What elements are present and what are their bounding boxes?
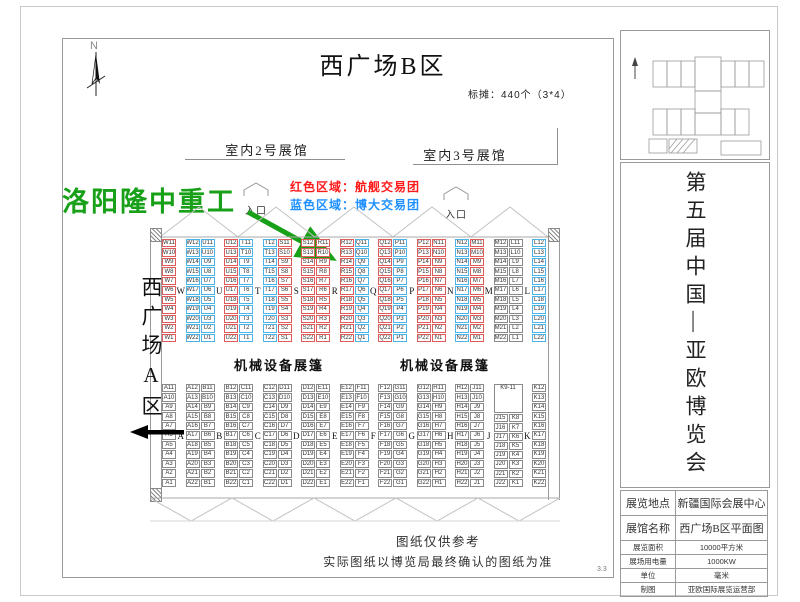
booth-cell: M6 [470, 286, 484, 294]
booth-cell: Q15 [378, 267, 392, 275]
booth-cell: R2 [316, 324, 330, 332]
booth-cell: A4 [162, 450, 176, 458]
venue-overview-minimap [621, 31, 769, 157]
booth-cell: B20 [224, 460, 238, 468]
overview-map-box [620, 30, 770, 160]
booth-cell: R19 [340, 305, 354, 313]
info-value: 新疆国际会展中心 [676, 491, 768, 516]
booth-cell: E2 [316, 469, 330, 477]
west-area-label: 西广场A区 [136, 276, 166, 436]
booth-cell: W21 [186, 324, 200, 332]
row-letter: M [485, 239, 493, 342]
booth-cell: Q22 [378, 334, 392, 342]
booth-cell: R3 [316, 315, 330, 323]
booth-cell: M16 [494, 277, 508, 285]
booth-cell: G15 [417, 412, 431, 420]
booth-cell: D16 [301, 422, 315, 430]
booth-column-group: A12A13A14A15A16A17A18A19A20A21A22B11B10B… [186, 384, 215, 487]
booth-cell: A19 [186, 450, 200, 458]
booth-cell: H19 [455, 450, 469, 458]
booth-cell: L11 [509, 239, 523, 247]
booth-cell: P20 [417, 315, 431, 323]
booth-cell: C9 [239, 403, 253, 411]
footer-line2: 实际图纸以博览局最终确认的图纸为准 [318, 553, 558, 570]
booth-cell: R11 [316, 239, 330, 247]
booth-cell: T13 [263, 248, 277, 256]
entrance-roof-icon [442, 186, 470, 201]
booth-column-group: F12F13F14F15F16F17F18F19F20F21F22G11G10G… [378, 384, 407, 487]
booth-cell: K16 [532, 422, 546, 430]
booth-cell: S13 [301, 248, 315, 256]
booth-cell: E9 [316, 403, 330, 411]
row-letter: P [408, 239, 416, 342]
booth-cell: L12 [532, 239, 546, 247]
info-label: 展览地点 [621, 491, 676, 516]
booth-cell: P3 [393, 315, 407, 323]
booth-cell: C4 [239, 450, 253, 458]
booth-cell: L7 [509, 277, 523, 285]
booth-cell: T17 [263, 286, 277, 294]
booth-cell: F1 [355, 479, 369, 487]
booth-cell: W16 [186, 277, 200, 285]
booth-cell: G13 [417, 393, 431, 401]
booth-cell: M19 [494, 305, 508, 313]
booth-cell: L6 [509, 286, 523, 294]
booth-cell: U14 [224, 258, 238, 266]
booth-cell: A14 [186, 403, 200, 411]
booth-cell: B8 [201, 412, 215, 420]
booth-cell: P21 [417, 324, 431, 332]
booth-cell: N18 [455, 296, 469, 304]
row-letter: N [446, 239, 454, 342]
booth-cell: D10 [278, 393, 292, 401]
booth-cell: E4 [316, 450, 330, 458]
booth-cell: J20 [494, 460, 508, 468]
booth-cell: N14 [455, 258, 469, 266]
booth-cell: Q21 [378, 324, 392, 332]
booth-cell: A1 [162, 479, 176, 487]
row-letter: L [523, 239, 531, 342]
booth-cell: K4 [509, 451, 523, 459]
booth-cell: K22 [532, 479, 546, 487]
booth-cell: U11 [201, 239, 215, 247]
booth-cell: K2 [509, 470, 523, 478]
booth-grid-lower: A11A10A9A8A7A6A5A4A3A2A1AA12A13A14A15A16… [162, 384, 546, 487]
booth-cell: M2 [470, 324, 484, 332]
booth-cell: W22 [186, 334, 200, 342]
booth-cell: N13 [455, 248, 469, 256]
booth-cell: G2 [393, 469, 407, 477]
booth-cell: Q5 [355, 296, 369, 304]
booth-cell: R1 [316, 334, 330, 342]
booth-cell: F5 [355, 441, 369, 449]
booth-cell: B3 [201, 460, 215, 468]
booth-cell: S7 [278, 277, 292, 285]
booth-cell: F20 [378, 460, 392, 468]
booth-cell: U15 [224, 267, 238, 275]
booth-column-group: B12B13B14B15B16B17B18B19B20B21B22C11C10C… [224, 384, 253, 487]
booth-column-group: T12T13T14T15T16T17T18T19T20T21T22S11S10S… [263, 239, 292, 342]
footer-line1: 图纸仅供参考 [318, 531, 558, 550]
info-label: 展览面积 [621, 541, 676, 555]
hall-3-wall-side [557, 128, 558, 165]
booth-cell: T7 [239, 277, 253, 285]
table-row: 展场用电量 1000KW [621, 555, 768, 569]
row-letter: E [331, 384, 339, 487]
booth-cell: L8 [509, 267, 523, 275]
booth-cell: Q20 [378, 315, 392, 323]
booth-cell: T22 [263, 334, 277, 342]
booth-cell: R10 [316, 248, 330, 256]
booth-cell: S16 [301, 277, 315, 285]
info-table: 展览地点 新疆国际会展中心 展馆名称 西广场B区平面图 展览面积 10000平方… [620, 490, 768, 597]
booth-cell: D14 [301, 403, 315, 411]
booth-cell: W17 [186, 286, 200, 294]
booth-cell: P13 [417, 248, 431, 256]
booth-cell: W10 [162, 248, 176, 256]
booth-cell: F7 [355, 422, 369, 430]
booth-cell: D5 [278, 441, 292, 449]
info-value: 毫米 [676, 569, 768, 583]
booth-block: K9-11 [494, 384, 523, 413]
booth-cell: Q12 [378, 239, 392, 247]
booth-cell: E13 [340, 393, 354, 401]
booth-cell: B15 [224, 412, 238, 420]
booth-cell: B7 [201, 422, 215, 430]
booth-cell: H8 [432, 412, 446, 420]
booth-cell: J16 [494, 423, 508, 431]
booth-cell: E21 [340, 469, 354, 477]
booth-cell: N8 [432, 267, 446, 275]
booth-cell: R6 [316, 286, 330, 294]
booth-cell: A20 [186, 460, 200, 468]
booth-cell: G17 [417, 431, 431, 439]
booth-column-group: C12C13C14C15C16C17C18C19C20C21C22D11D10D… [263, 384, 292, 487]
booth-cell: B4 [201, 450, 215, 458]
booth-cell: H1 [432, 479, 446, 487]
west-direction-arrow [128, 424, 186, 440]
row-letter: C [254, 384, 262, 487]
booth-cell: H15 [455, 412, 469, 420]
row-letter: H [446, 384, 454, 487]
booth-cell: K12 [532, 384, 546, 392]
tent-label-right: 机械设备展篷 [390, 355, 500, 374]
booth-cell: E20 [340, 460, 354, 468]
row-letter: J [485, 384, 493, 487]
booth-cell: A17 [186, 431, 200, 439]
booth-column-group: U12U13U14U15U16U17U18U19U20U21U22T11T10T… [224, 239, 253, 342]
booth-cell: M4 [470, 305, 484, 313]
booth-cell: Q17 [378, 286, 392, 294]
booth-cell: B21 [224, 469, 238, 477]
booth-cell: M7 [470, 277, 484, 285]
row-letter: Q [369, 239, 377, 342]
booth-cell: P18 [417, 296, 431, 304]
info-value: 10000平方米 [676, 541, 768, 555]
booth-cell: R17 [340, 286, 354, 294]
booth-cell: S22 [301, 334, 315, 342]
booth-cell: P16 [417, 277, 431, 285]
booth-column-group: E12E13E14E15E16E17E18E19E20E21E22F11F10F… [340, 384, 369, 487]
booth-cell: E22 [340, 479, 354, 487]
booth-cell: B22 [224, 479, 238, 487]
booth-cell: C8 [239, 412, 253, 420]
booth-cell: F19 [378, 450, 392, 458]
row-letter: W [177, 239, 185, 342]
booth-cell: T15 [263, 267, 277, 275]
booth-count-note: 标摊：440个（3*4） [468, 86, 608, 101]
booth-cell: Q14 [378, 258, 392, 266]
booth-cell: W14 [186, 258, 200, 266]
booth-cell: G20 [417, 460, 431, 468]
booth-cell: B9 [201, 403, 215, 411]
booth-cell: H2 [432, 469, 446, 477]
booth-column-group: G12G13G14G15G16G17G18G19G20G21G22H11H10H… [417, 384, 446, 487]
booth-column-group: K9-11J15J16J17J18J19J20J21J22K8K7K6K5K4K… [494, 384, 523, 487]
info-value: 亚欧国际展览运营部 [676, 583, 768, 597]
booth-cell: N6 [432, 286, 446, 294]
booth-column-group: R12R13R14R15R16R17R18R19R20R21R22Q11Q10Q… [340, 239, 369, 342]
booth-cell: J19 [494, 451, 508, 459]
booth-cell: R18 [340, 296, 354, 304]
booth-cell: B11 [201, 384, 215, 392]
booth-cell: T8 [239, 267, 253, 275]
booth-cell: C20 [263, 460, 277, 468]
row-letter: K [523, 384, 531, 487]
booth-cell: M17 [494, 286, 508, 294]
booth-cell: J7 [470, 422, 484, 430]
booth-cell: H9 [432, 403, 446, 411]
booth-cell: G10 [393, 393, 407, 401]
booth-cell: L9 [509, 258, 523, 266]
booth-cell: F21 [378, 469, 392, 477]
table-row: 单位 毫米 [621, 569, 768, 583]
booth-cell: F4 [355, 450, 369, 458]
booth-cell: E17 [340, 431, 354, 439]
booth-cell: K21 [532, 469, 546, 477]
booth-cell: P15 [417, 267, 431, 275]
booth-cell: J21 [494, 470, 508, 478]
booth-cell: R16 [340, 277, 354, 285]
booth-cell: S15 [301, 267, 315, 275]
hall-2-label: 室内2号展馆 [212, 140, 322, 159]
booth-grid-upper: W11W10W9W8W7W6W5W4W3W2W1WW12W13W14W15W16… [162, 239, 546, 342]
booth-cell: L17 [532, 286, 546, 294]
booth-cell: C12 [263, 384, 277, 392]
booth-cell: U12 [224, 239, 238, 247]
booth-cell: D8 [278, 412, 292, 420]
booth-cell: U5 [201, 296, 215, 304]
info-label: 展馆名称 [621, 516, 676, 541]
tent-roofs-bottom [150, 497, 560, 525]
booth-cell: C17 [263, 431, 277, 439]
booth-cell: S8 [278, 267, 292, 275]
booth-cell: L3 [509, 315, 523, 323]
booth-cell: N12 [455, 239, 469, 247]
booth-cell: L13 [532, 248, 546, 256]
row-letter: U [215, 239, 223, 342]
booth-cell: T6 [239, 286, 253, 294]
booth-cell: J22 [494, 479, 508, 487]
booth-cell: M15 [494, 267, 508, 275]
booth-cell: M22 [494, 334, 508, 342]
booth-cell: L1 [509, 334, 523, 342]
row-letter: D [292, 384, 300, 487]
booth-cell: P11 [393, 239, 407, 247]
booth-cell: L16 [532, 277, 546, 285]
booth-cell: G18 [417, 441, 431, 449]
booth-cell: U7 [201, 277, 215, 285]
footer-note: 图纸仅供参考 实际图纸以博览局最终确认的图纸为准 [318, 531, 558, 570]
booth-cell: S5 [278, 296, 292, 304]
page-title: 西广场B区 [298, 46, 468, 81]
booth-cell: B10 [201, 393, 215, 401]
booth-cell: R13 [340, 248, 354, 256]
page-number: 3.3 [597, 566, 607, 573]
booth-cell: E14 [340, 403, 354, 411]
booth-cell: D1 [278, 479, 292, 487]
booth-cell: H16 [455, 422, 469, 430]
booth-cell: A5 [162, 441, 176, 449]
booth-column-group: N12N13N14N15N16N17N18N19N20N21N22M11M10M… [455, 239, 484, 342]
booth-cell: D9 [278, 403, 292, 411]
booth-column-group: D12D13D14D15D16D17D18D19D20D21D22E11E10E… [301, 384, 330, 487]
booth-cell: S4 [278, 305, 292, 313]
booth-cell: U9 [201, 258, 215, 266]
booth-cell: W15 [186, 267, 200, 275]
booth-cell: C21 [263, 469, 277, 477]
booth-cell: N21 [455, 324, 469, 332]
booth-cell: E7 [316, 422, 330, 430]
booth-cell: S9 [278, 258, 292, 266]
booth-cell: E3 [316, 460, 330, 468]
booth-cell: G21 [417, 469, 431, 477]
booth-cell: P9 [393, 258, 407, 266]
booth-cell: Q4 [355, 305, 369, 313]
booth-cell: E1 [316, 479, 330, 487]
booth-cell: K19 [532, 450, 546, 458]
booth-cell: L14 [532, 258, 546, 266]
booth-cell: K5 [509, 442, 523, 450]
booth-cell: W9 [162, 258, 176, 266]
booth-cell: S1 [278, 334, 292, 342]
booth-cell: S20 [301, 315, 315, 323]
booth-cell: C3 [239, 460, 253, 468]
booth-cell: F6 [355, 431, 369, 439]
booth-cell: H20 [455, 460, 469, 468]
hall-3-label: 室内3号展馆 [410, 145, 520, 164]
booth-cell: U21 [224, 324, 238, 332]
booth-cell: F3 [355, 460, 369, 468]
booth-column-group: L12L13L14L15L16L17L18L19L20L21L22 [532, 239, 546, 342]
booth-cell: T20 [263, 315, 277, 323]
booth-cell: G5 [393, 441, 407, 449]
booth-cell: K13 [532, 393, 546, 401]
booth-column-group: M12M13M14M15M16M17M18M19M20M21M22L11L10L… [494, 239, 523, 342]
booth-cell: H13 [455, 393, 469, 401]
booth-cell: Q16 [378, 277, 392, 285]
booth-cell: E6 [316, 431, 330, 439]
booth-cell: L4 [509, 305, 523, 313]
booth-cell: Q10 [355, 248, 369, 256]
booth-cell: B2 [201, 469, 215, 477]
booth-cell: G12 [417, 384, 431, 392]
booth-cell: S18 [301, 296, 315, 304]
booth-cell: N7 [432, 277, 446, 285]
booth-cell: Q8 [355, 267, 369, 275]
info-label: 制图 [621, 583, 676, 597]
booth-cell: T1 [239, 334, 253, 342]
booth-cell: G6 [393, 431, 407, 439]
row-letter: B [215, 384, 223, 487]
booth-cell: L15 [532, 267, 546, 275]
booth-cell: G16 [417, 422, 431, 430]
booth-cell: N20 [455, 315, 469, 323]
info-value: 1000KW [676, 555, 768, 569]
booth-cell: P22 [417, 334, 431, 342]
booth-cell: H5 [432, 441, 446, 449]
booth-cell: U17 [224, 286, 238, 294]
right-wall-strip [548, 228, 560, 500]
booth-cell: T3 [239, 315, 253, 323]
booth-cell: R12 [340, 239, 354, 247]
booth-cell: N4 [432, 305, 446, 313]
booth-cell: P14 [417, 258, 431, 266]
booth-cell: E12 [340, 384, 354, 392]
booth-cell: H22 [455, 479, 469, 487]
booth-cell: G4 [393, 450, 407, 458]
compass-icon [84, 52, 108, 98]
booth-cell: N16 [455, 277, 469, 285]
booth-cell: H6 [432, 431, 446, 439]
booth-cell: D12 [301, 384, 315, 392]
booth-cell: D7 [278, 422, 292, 430]
booth-cell: J15 [494, 414, 508, 422]
booth-cell: Q2 [355, 324, 369, 332]
booth-cell: K17 [532, 431, 546, 439]
booth-cell: A16 [186, 422, 200, 430]
booth-cell: S10 [278, 248, 292, 256]
booth-cell: W13 [186, 248, 200, 256]
booth-cell: S21 [301, 324, 315, 332]
booth-cell: T16 [263, 277, 277, 285]
booth-cell: T4 [239, 305, 253, 313]
booth-cell: R21 [340, 324, 354, 332]
booth-cell: F15 [378, 412, 392, 420]
booth-cell: U10 [201, 248, 215, 256]
table-row: 制图 亚欧国际展览运营部 [621, 583, 768, 597]
booth-cell: D2 [278, 469, 292, 477]
booth-cell: F16 [378, 422, 392, 430]
booth-cell: E5 [316, 441, 330, 449]
booth-cell: M18 [494, 296, 508, 304]
booth-cell: H11 [432, 384, 446, 392]
booth-cell: C11 [239, 384, 253, 392]
booth-cell: M20 [494, 315, 508, 323]
booth-cell: E8 [316, 412, 330, 420]
booth-cell: M21 [494, 324, 508, 332]
booth-cell: D17 [301, 431, 315, 439]
booth-cell: F8 [355, 412, 369, 420]
booth-cell: U1 [201, 334, 215, 342]
hall-2-wall [185, 159, 345, 160]
booth-cell: N11 [432, 239, 446, 247]
info-value: 西广场B区平面图 [676, 516, 768, 541]
booth-cell: Q13 [378, 248, 392, 256]
booth-cell: H18 [455, 441, 469, 449]
row-letter: G [408, 384, 416, 487]
booth-cell: N15 [455, 267, 469, 275]
